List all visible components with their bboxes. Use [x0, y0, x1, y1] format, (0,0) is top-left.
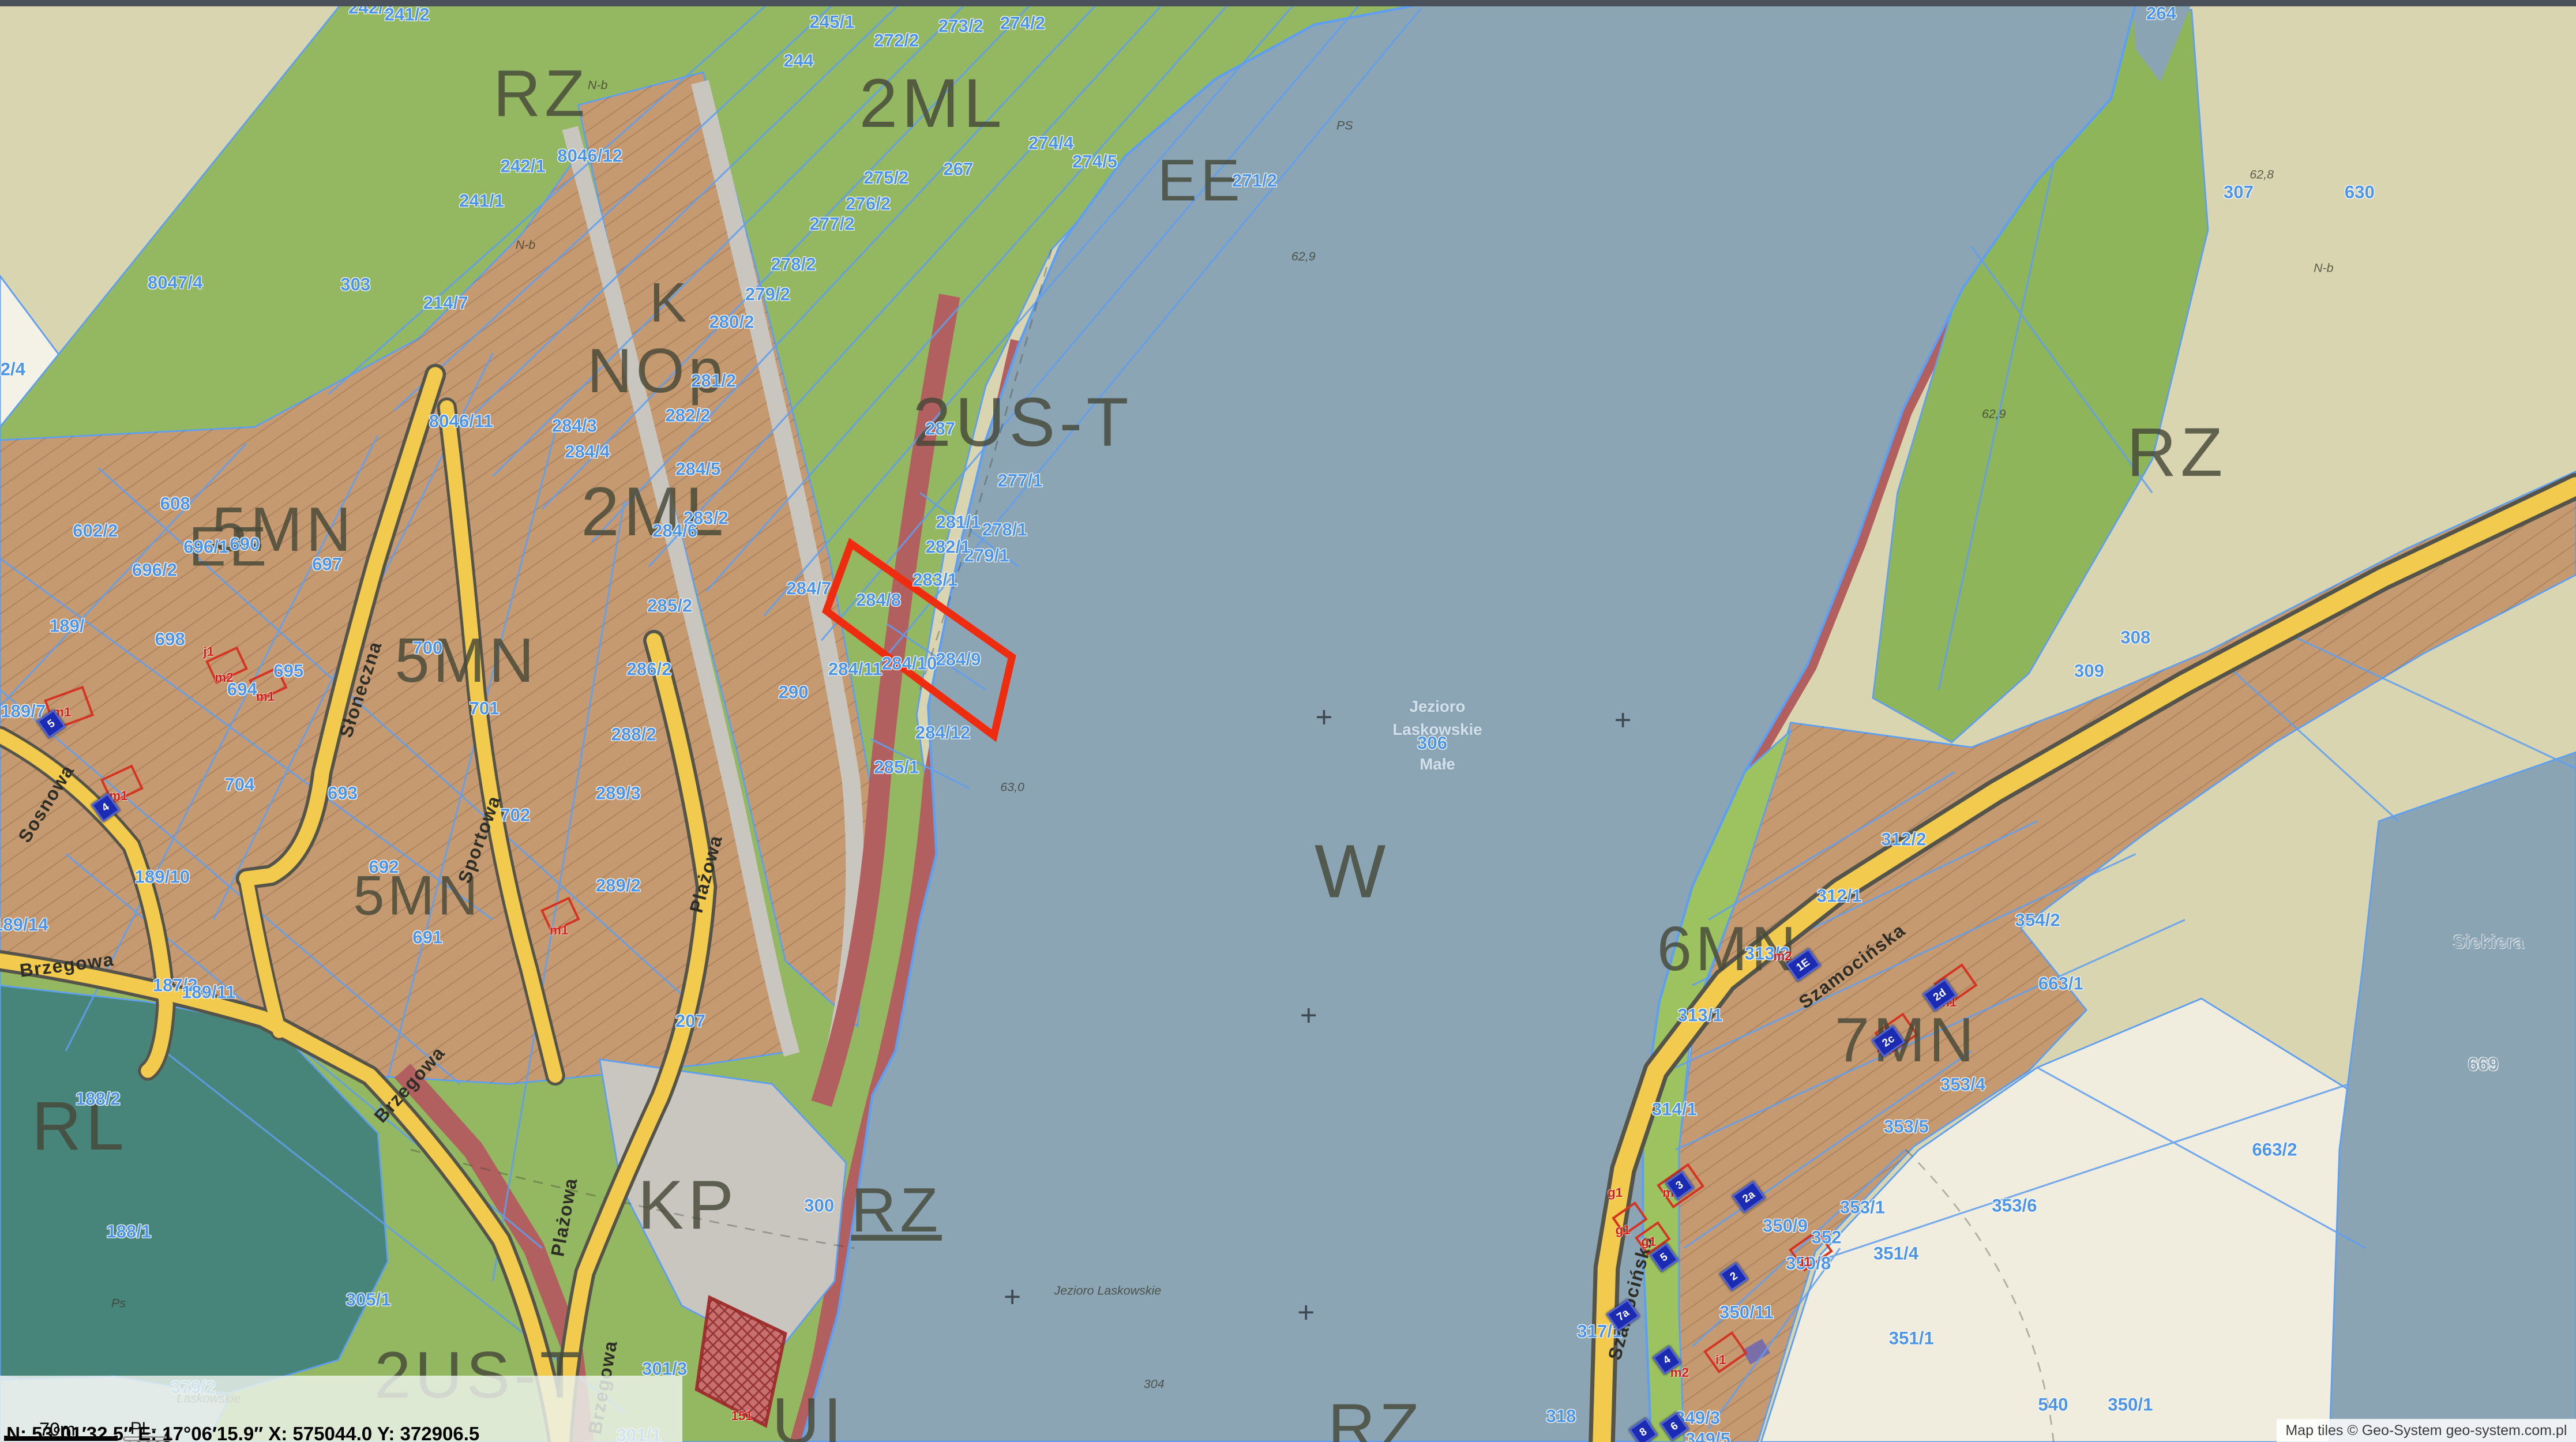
map-canvas[interactable]: [0, 0, 2576, 1442]
coordinate-status-bar: N: 53°01′32.5″ E: 17°06′15.9″ X: 575044.…: [6, 1424, 479, 1442]
map-attribution-link[interactable]: Map tiles © Geo-System geo-system.com.pl: [2277, 1419, 2576, 1442]
window-top-strip: [0, 0, 2576, 6]
map-viewer: RZ2MLEEKNOp2US-T2ML5MNEE5MN5MNRZWKPRZRL6…: [0, 0, 2576, 1442]
